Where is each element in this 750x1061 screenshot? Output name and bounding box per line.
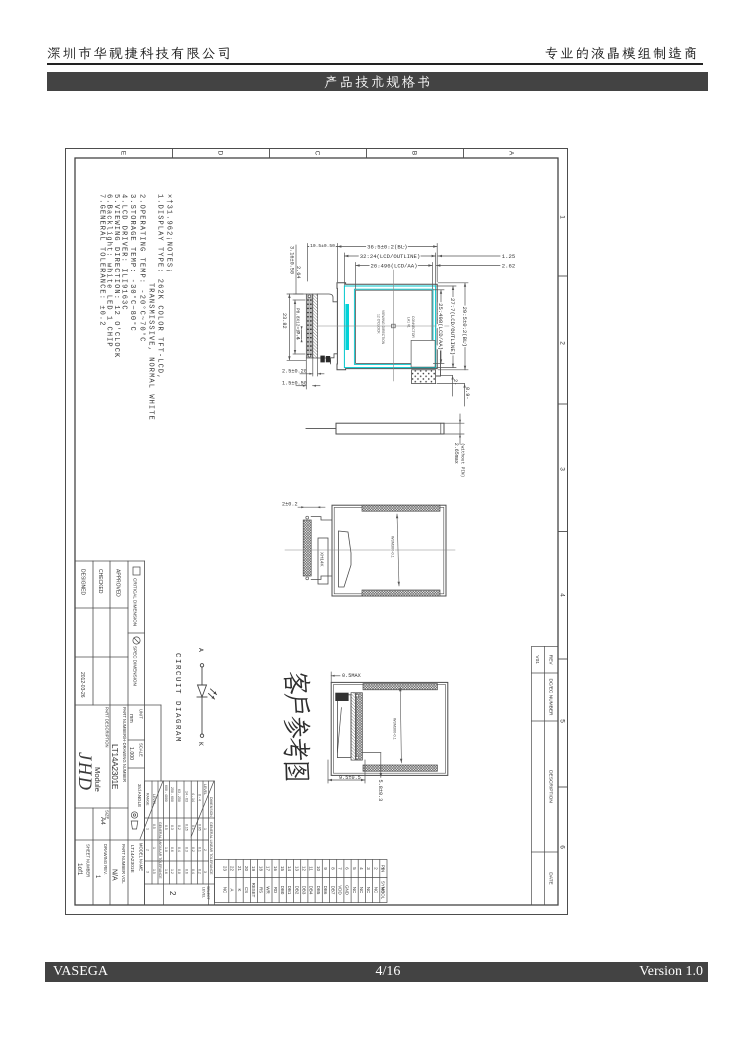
svg-text:2.5±0.20: 2.5±0.20 bbox=[282, 369, 307, 375]
svg-text:1: 1 bbox=[94, 875, 100, 879]
svg-text:NC: NC bbox=[366, 887, 371, 893]
svg-text:16: 16 bbox=[273, 866, 278, 871]
svg-text:3.STORAGE TEMP: -30°C~80°C: 3.STORAGE TEMP: -30°C~80°C bbox=[128, 194, 137, 332]
svg-text:DB0: DB0 bbox=[280, 886, 285, 895]
svg-text:REV: REV bbox=[548, 655, 554, 666]
svg-text:SELECT: SELECT bbox=[206, 886, 210, 900]
svg-text:NC: NC bbox=[222, 887, 227, 893]
svg-text:VIEWING DIRECTION: VIEWING DIRECTION bbox=[381, 310, 385, 345]
svg-text:LA1 #1: LA1 #1 bbox=[407, 317, 411, 328]
svg-text:36.5±0.2(BL): 36.5±0.2(BL) bbox=[367, 243, 407, 250]
svg-text:12 O'CLOCK: 12 O'CLOCK bbox=[377, 314, 381, 334]
svg-text:25.498(LCD/AA): 25.498(LCD/AA) bbox=[437, 303, 444, 350]
svg-text:0.15: 0.15 bbox=[185, 824, 189, 831]
svg-text:DB3: DB3 bbox=[302, 886, 307, 895]
svg-text:2.65max: 2.65max bbox=[453, 443, 459, 464]
svg-text:MODEL NAME: MODEL NAME bbox=[139, 843, 144, 871]
svg-text:VDD: VDD bbox=[338, 885, 343, 894]
svg-text:26.496(LCD/AA): 26.496(LCD/AA) bbox=[371, 262, 418, 269]
svg-text:C: C bbox=[314, 151, 321, 156]
svg-text:A: A bbox=[230, 889, 235, 892]
svg-text:2: 2 bbox=[146, 849, 150, 851]
svg-text:NC: NC bbox=[381, 887, 386, 893]
svg-text:0.9-: 0.9- bbox=[464, 387, 470, 399]
svg-text:0.3: 0.3 bbox=[185, 847, 189, 852]
svg-text:1.000: 1.000 bbox=[128, 747, 134, 760]
svg-text:12: 12 bbox=[302, 866, 307, 871]
svg-text:3: 3 bbox=[559, 467, 566, 471]
svg-text:W3M300-0.1: W3M300-0.1 bbox=[393, 718, 397, 740]
svg-text:0.2: 0.2 bbox=[191, 847, 195, 852]
svg-text:29.5±0.2(BL): 29.5±0.2(BL) bbox=[461, 306, 468, 346]
svg-text:23.82: 23.82 bbox=[281, 313, 287, 329]
svg-text:22: 22 bbox=[230, 866, 235, 871]
svg-text:LT14A2301E: LT14A2301E bbox=[129, 845, 135, 873]
svg-text:0.05: 0.05 bbox=[197, 824, 201, 831]
svg-text:1of1: 1of1 bbox=[76, 863, 83, 876]
svg-text:WR: WR bbox=[266, 886, 271, 893]
svg-text:0.8: 0.8 bbox=[177, 869, 181, 874]
svg-text:3: 3 bbox=[203, 871, 207, 873]
svg-text:K: K bbox=[237, 889, 242, 892]
svg-text:NC: NC bbox=[373, 887, 378, 893]
svg-text:1.5±0.50: 1.5±0.50 bbox=[282, 381, 307, 387]
svg-text:14 - 63: 14 - 63 bbox=[185, 791, 189, 802]
svg-text:0.6: 0.6 bbox=[170, 847, 174, 852]
svg-text:2: 2 bbox=[373, 867, 378, 870]
svg-text:6: 6 bbox=[559, 845, 566, 849]
svg-text:GENERAL LINEAR TOLERANCE: GENERAL LINEAR TOLERANCE bbox=[209, 822, 213, 875]
svg-text:63 - 250: 63 - 250 bbox=[177, 789, 181, 802]
svg-text:XH14K: XH14K bbox=[320, 552, 325, 567]
svg-text:DESIGNED: DESIGNED bbox=[80, 569, 86, 596]
svg-text:N/A: N/A bbox=[111, 869, 118, 881]
svg-text:DB2: DB2 bbox=[294, 886, 299, 895]
svg-text:RANGE: RANGE bbox=[146, 793, 150, 806]
svg-text:CHECKED: CHECKED bbox=[97, 569, 103, 594]
svg-text:2: 2 bbox=[168, 891, 177, 896]
svg-text:2.OPERATING TEMP: -20°C~70°C: 2.OPERATING TEMP: -20°C~70°C bbox=[138, 194, 147, 342]
svg-text:DB1: DB1 bbox=[287, 886, 292, 895]
svg-text:6: 6 bbox=[345, 867, 350, 870]
svg-text:DB5: DB5 bbox=[316, 886, 321, 895]
svg-text:A4: A4 bbox=[99, 817, 106, 825]
svg-text:TRANSMISSIVE, NORMAL WHITE: TRANSMISSIVE, NORMAL WHITE bbox=[147, 283, 155, 421]
svg-text:NC: NC bbox=[352, 887, 357, 893]
svg-text:DATE: DATE bbox=[548, 872, 554, 884]
svg-text:2-: 2- bbox=[452, 379, 458, 385]
svg-text:7: 7 bbox=[338, 867, 343, 870]
svg-text:UNIT: UNIT bbox=[139, 709, 144, 719]
svg-text:5: 5 bbox=[352, 867, 357, 870]
svg-text:K: K bbox=[197, 742, 204, 746]
svg-text:GND: GND bbox=[345, 885, 350, 895]
svg-text:DIMENSION: DIMENSION bbox=[209, 797, 213, 817]
svg-text:NC: NC bbox=[359, 887, 364, 893]
svg-text:SPEC DIMENSION: SPEC DIMENSION bbox=[133, 646, 138, 686]
svg-text:18: 18 bbox=[258, 866, 263, 871]
svg-text:5: 5 bbox=[559, 719, 566, 723]
svg-text:32.24(LCD/OUTLINE): 32.24(LCD/OUTLINE) bbox=[360, 253, 420, 260]
svg-text:2012-03-26: 2012-03-26 bbox=[79, 672, 85, 698]
svg-text:LEVEL: LEVEL bbox=[203, 784, 207, 795]
svg-text:7.GENERAL TOLERANCE: ±0.2: 7.GENERAL TOLERANCE: ±0.2 bbox=[98, 194, 106, 327]
svg-text:PART DESCRIPTION: PART DESCRIPTION bbox=[105, 707, 110, 748]
svg-text:250 - 600: 250 - 600 bbox=[170, 787, 174, 802]
svg-text:RD: RD bbox=[273, 887, 278, 893]
svg-text:CS: CS bbox=[244, 887, 249, 893]
svg-text:DB7: DB7 bbox=[330, 886, 335, 895]
svg-text:3: 3 bbox=[146, 871, 150, 873]
svg-text:JHD: JHD bbox=[74, 752, 94, 791]
svg-text:(without PIN): (without PIN) bbox=[460, 443, 465, 477]
svg-text:11: 11 bbox=[309, 866, 314, 871]
svg-text:PART NUMBER/H-DRAWING NUMBER: PART NUMBER/H-DRAWING NUMBER bbox=[122, 707, 127, 782]
svg-text:1: 1 bbox=[559, 215, 566, 219]
svg-text:0.2: 0.2 bbox=[197, 869, 201, 874]
svg-text:CIRCUIT DIAGRAM: CIRCUIT DIAGRAM bbox=[173, 653, 181, 743]
svg-text:LEVEL: LEVEL bbox=[202, 887, 206, 898]
svg-text:0.4: 0.4 bbox=[295, 331, 301, 340]
svg-text:1.2: 1.2 bbox=[170, 869, 174, 874]
svg-text:17: 17 bbox=[266, 866, 271, 871]
svg-text:LT14A2301E: LT14A2301E bbox=[110, 744, 119, 790]
svg-text:mm: mm bbox=[128, 714, 134, 723]
svg-text:0.3: 0.3 bbox=[170, 825, 174, 830]
svg-text:CRITICAL DIMENSION: CRITICAL DIMENSION bbox=[133, 578, 138, 626]
svg-text:15: 15 bbox=[280, 866, 285, 871]
svg-text:1.6: 1.6 bbox=[164, 869, 168, 874]
svg-text:PART NUMBER VOL: PART NUMBER VOL bbox=[121, 844, 126, 884]
svg-text:3rd ANGLE: 3rd ANGLE bbox=[137, 784, 142, 807]
svg-text:2: 2 bbox=[559, 341, 566, 345]
svg-text:1.DISPLAY TYPE: 262K COLOR T: 1.DISPLAY TYPE: 262K COLOR TFT-LCD, bbox=[156, 194, 164, 380]
svg-text:E: E bbox=[120, 151, 127, 156]
svg-text:0.1: 0.1 bbox=[191, 825, 195, 830]
svg-text:V01: V01 bbox=[534, 655, 540, 664]
svg-text:0.6: 0.6 bbox=[185, 869, 189, 874]
svg-text:4: 4 bbox=[359, 867, 364, 870]
svg-text:DB4: DB4 bbox=[309, 886, 314, 895]
svg-text:1.5: 1.5 bbox=[152, 869, 156, 874]
svg-text:1.0: 1.0 bbox=[164, 847, 168, 852]
svg-text:SCALE: SCALE bbox=[139, 743, 144, 757]
svg-text:5.8±0.3: 5.8±0.3 bbox=[377, 780, 383, 802]
svg-text:2.62: 2.62 bbox=[502, 262, 515, 269]
svg-text:19: 19 bbox=[251, 866, 256, 871]
svg-text:0.5MAX: 0.5MAX bbox=[342, 673, 362, 679]
svg-text:0.1: 0.1 bbox=[197, 847, 201, 852]
svg-text:27.7(LCD/OUTLINE): 27.7(LCD/OUTLINE) bbox=[449, 298, 456, 355]
svg-text:1: 1 bbox=[152, 847, 156, 849]
svg-text:DESCRIPTION: DESCRIPTION bbox=[548, 770, 554, 803]
svg-text:2.64: 2.64 bbox=[295, 266, 301, 278]
svg-text:20: 20 bbox=[244, 866, 249, 871]
svg-text:2: 2 bbox=[203, 849, 207, 851]
svg-text:CONNECTOR: CONNECTOR bbox=[411, 316, 415, 338]
svg-text:D: D bbox=[217, 151, 224, 156]
svg-text:10: 10 bbox=[316, 866, 321, 871]
svg-text:10.5±0.50: 10.5±0.50 bbox=[310, 243, 335, 249]
svg-text:APPROVED: APPROVED bbox=[115, 569, 121, 597]
svg-text:DB6: DB6 bbox=[323, 886, 328, 895]
svg-text:×†31.962¡NOTES¡: ×†31.962¡NOTES¡ bbox=[165, 194, 173, 274]
svg-text:SHEET NUMBER: SHEET NUMBER bbox=[86, 844, 91, 877]
svg-text:0.4: 0.4 bbox=[191, 869, 195, 874]
svg-text:A: A bbox=[197, 648, 204, 652]
svg-text:1: 1 bbox=[203, 828, 207, 830]
svg-text:9: 9 bbox=[323, 867, 328, 870]
svg-text:13: 13 bbox=[294, 866, 299, 871]
svg-text:21: 21 bbox=[237, 866, 242, 871]
svg-text:W3M300-0.1: W3M300-0.1 bbox=[391, 536, 395, 558]
svg-text:0.4: 0.4 bbox=[177, 847, 181, 852]
svg-text:9.5±0.5: 9.5±0.5 bbox=[339, 775, 361, 781]
svg-text:DC/EC NUMBER: DC/EC NUMBER bbox=[548, 678, 554, 716]
svg-text:RESET: RESET bbox=[251, 883, 256, 898]
svg-text:A: A bbox=[508, 151, 515, 156]
svg-text:DRAWING REV.: DRAWING REV. bbox=[103, 844, 108, 875]
svg-text:1.25: 1.25 bbox=[502, 253, 515, 260]
svg-text:600 - 4000: 600 - 4000 bbox=[164, 785, 168, 802]
svg-text:14: 14 bbox=[287, 866, 292, 871]
svg-text:LEVEL: LEVEL bbox=[152, 794, 156, 805]
svg-text:8: 8 bbox=[330, 867, 335, 870]
svg-text:RS: RS bbox=[258, 887, 263, 893]
svg-text:2±0.2: 2±0.2 bbox=[282, 502, 298, 508]
svg-text:4 - 14: 4 - 14 bbox=[191, 793, 195, 802]
svg-text:GENERAL ANGULAR TOLERANCE: GENERAL ANGULAR TOLERANCE bbox=[158, 822, 162, 879]
svg-text:1: 1 bbox=[146, 828, 150, 830]
svg-text:3: 3 bbox=[366, 867, 371, 870]
svg-text:0.5: 0.5 bbox=[164, 825, 168, 830]
svg-text:3.16±0.50: 3.16±0.50 bbox=[289, 246, 295, 274]
svg-text:B: B bbox=[411, 151, 418, 155]
svg-text:0.5: 0.5 bbox=[152, 824, 156, 829]
svg-text:4: 4 bbox=[559, 593, 566, 597]
svg-text:23: 23 bbox=[222, 866, 227, 871]
svg-text:0 - 4: 0 - 4 bbox=[197, 794, 201, 801]
svg-text:0.2: 0.2 bbox=[177, 825, 181, 830]
